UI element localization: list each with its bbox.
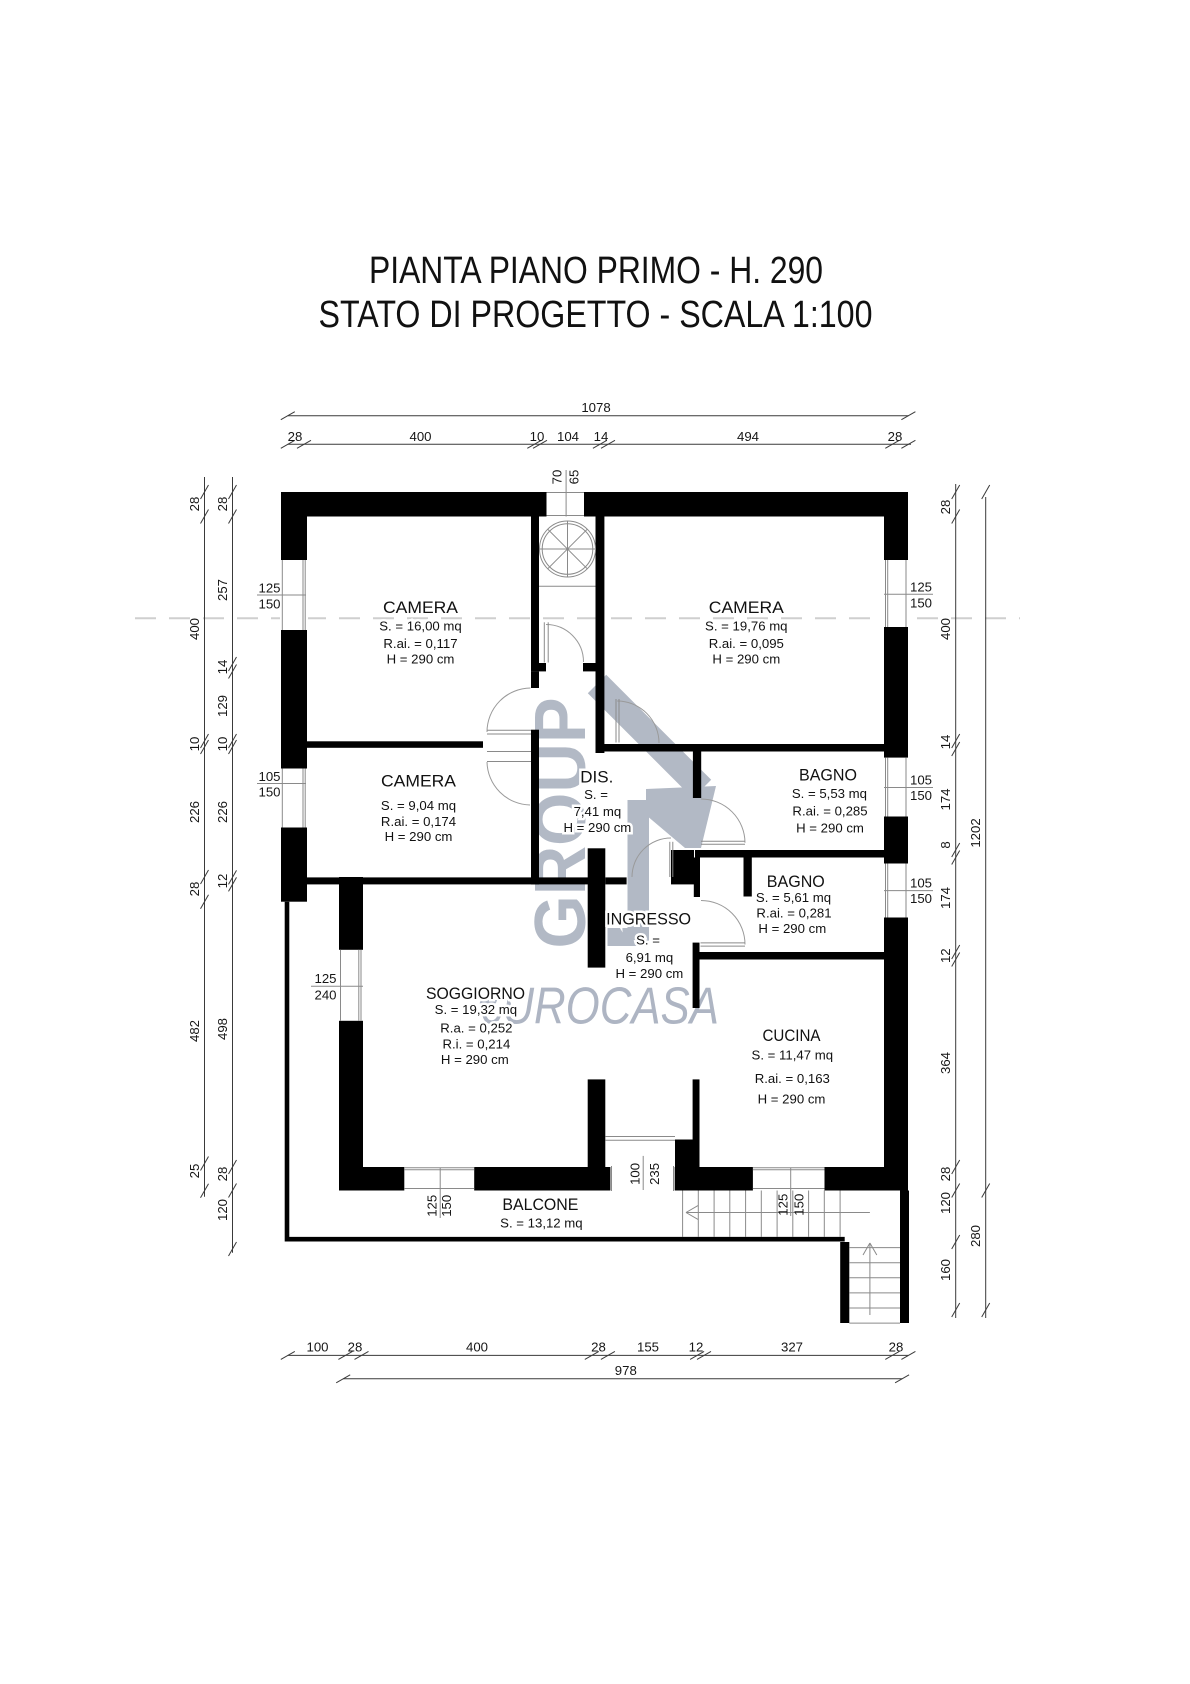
svg-text:H = 290 cm: H = 290 cm (615, 966, 683, 981)
svg-text:H = 290 cm: H = 290 cm (758, 1092, 826, 1107)
svg-text:14: 14 (938, 735, 953, 750)
svg-text:BAGNO: BAGNO (767, 872, 825, 891)
svg-text:125: 125 (425, 1195, 440, 1217)
svg-text:12: 12 (689, 1340, 704, 1355)
svg-text:S. =: S. = (584, 787, 608, 802)
svg-text:120: 120 (938, 1192, 953, 1214)
svg-text:CUCINA: CUCINA (763, 1026, 822, 1045)
svg-text:S. = 16,00 mq: S. = 16,00 mq (379, 619, 461, 634)
svg-text:10: 10 (215, 737, 230, 752)
svg-text:28: 28 (215, 1167, 230, 1182)
svg-text:R.ai. = 0,163: R.ai. = 0,163 (755, 1071, 830, 1086)
svg-text:978: 978 (615, 1363, 637, 1378)
svg-text:150: 150 (910, 891, 932, 906)
svg-text:28: 28 (888, 429, 903, 444)
svg-text:28: 28 (938, 1167, 953, 1182)
svg-text:400: 400 (938, 618, 953, 640)
svg-text:BALCONE: BALCONE (502, 1195, 578, 1214)
svg-text:240: 240 (314, 988, 336, 1003)
svg-text:CAMERA: CAMERA (383, 598, 459, 617)
svg-text:R.ai. = 0,285: R.ai. = 0,285 (792, 803, 867, 818)
svg-text:65: 65 (567, 470, 582, 485)
svg-text:1202: 1202 (968, 818, 983, 847)
svg-text:226: 226 (187, 801, 202, 823)
svg-text:H = 290 cm: H = 290 cm (563, 820, 631, 835)
svg-text:150: 150 (258, 785, 280, 800)
svg-text:28: 28 (288, 429, 303, 444)
svg-text:174: 174 (938, 788, 953, 810)
svg-text:498: 498 (215, 1018, 230, 1040)
svg-text:150: 150 (258, 597, 280, 612)
svg-text:125: 125 (776, 1194, 791, 1216)
svg-text:327: 327 (781, 1340, 803, 1355)
svg-text:28: 28 (889, 1340, 904, 1355)
svg-text:BAGNO: BAGNO (799, 766, 857, 785)
svg-text:6,91 mq: 6,91 mq (626, 950, 674, 965)
svg-text:10: 10 (530, 429, 545, 444)
svg-text:125: 125 (258, 581, 280, 596)
svg-text:174: 174 (938, 887, 953, 909)
svg-text:CAMERA: CAMERA (381, 772, 457, 791)
svg-text:10: 10 (187, 737, 202, 752)
svg-text:28: 28 (187, 882, 202, 897)
svg-text:12: 12 (938, 948, 953, 963)
svg-text:H = 290 cm: H = 290 cm (387, 652, 455, 667)
svg-text:H = 290 cm: H = 290 cm (758, 921, 826, 936)
svg-text:482: 482 (187, 1020, 202, 1042)
svg-text:150: 150 (910, 788, 932, 803)
svg-text:R.ai. = 0,117: R.ai. = 0,117 (383, 636, 457, 651)
svg-text:125: 125 (910, 580, 932, 595)
svg-text:105: 105 (258, 769, 280, 784)
svg-text:S. = 5,61 mq: S. = 5,61 mq (756, 890, 831, 905)
svg-text:STATO DI PROGETTO - SCALA 1:10: STATO DI PROGETTO - SCALA 1:100 (319, 294, 873, 336)
svg-text:257: 257 (215, 579, 230, 601)
svg-text:7,41 mq: 7,41 mq (574, 804, 622, 819)
svg-text:494: 494 (737, 429, 759, 444)
svg-text:R.ai. = 0,095: R.ai. = 0,095 (709, 636, 784, 651)
svg-text:H = 290 cm: H = 290 cm (441, 1052, 509, 1067)
svg-text:8: 8 (938, 841, 953, 848)
svg-text:12: 12 (215, 874, 230, 889)
svg-text:R.i. = 0,214: R.i. = 0,214 (442, 1037, 510, 1052)
svg-text:70: 70 (550, 470, 565, 485)
svg-text:235: 235 (647, 1163, 662, 1185)
svg-text:120: 120 (215, 1199, 230, 1221)
svg-text:14: 14 (594, 429, 609, 444)
svg-text:226: 226 (215, 801, 230, 823)
svg-text:28: 28 (348, 1340, 363, 1355)
svg-text:S. =: S. = (636, 933, 660, 948)
svg-text:28: 28 (938, 500, 953, 515)
svg-text:100: 100 (306, 1340, 328, 1355)
svg-text:INGRESSO: INGRESSO (606, 910, 691, 929)
svg-text:S. = 13,12 mq: S. = 13,12 mq (500, 1215, 582, 1230)
svg-text:150: 150 (910, 596, 932, 611)
svg-text:28: 28 (187, 497, 202, 512)
svg-text:H = 290 cm: H = 290 cm (385, 829, 453, 844)
svg-text:150: 150 (791, 1194, 806, 1216)
svg-text:280: 280 (968, 1225, 983, 1247)
svg-text:28: 28 (591, 1340, 606, 1355)
svg-text:125: 125 (314, 971, 336, 986)
svg-text:S. = 19,76 mq: S. = 19,76 mq (705, 619, 787, 634)
svg-text:S. = 5,53 mq: S. = 5,53 mq (792, 786, 867, 801)
svg-text:CAMERA: CAMERA (709, 598, 785, 617)
svg-text:R.ai. = 0,174: R.ai. = 0,174 (381, 814, 456, 829)
svg-text:SOGGIORNO: SOGGIORNO (426, 984, 525, 1003)
svg-text:104: 104 (557, 429, 579, 444)
svg-text:14: 14 (215, 660, 230, 675)
svg-text:DIS.: DIS. (580, 768, 613, 787)
svg-text:364: 364 (938, 1052, 953, 1074)
svg-text:R.ai. = 0,281: R.ai. = 0,281 (756, 905, 831, 920)
svg-text:105: 105 (910, 876, 932, 891)
svg-text:1078: 1078 (581, 400, 610, 415)
svg-text:160: 160 (938, 1259, 953, 1281)
svg-text:25: 25 (187, 1164, 202, 1179)
svg-text:150: 150 (439, 1195, 454, 1217)
svg-text:H = 290 cm: H = 290 cm (796, 820, 864, 835)
svg-text:H = 290 cm: H = 290 cm (712, 652, 780, 667)
svg-text:S. = 9,04 mq: S. = 9,04 mq (381, 798, 456, 813)
svg-text:400: 400 (466, 1340, 488, 1355)
svg-text:129: 129 (215, 695, 230, 717)
svg-text:28: 28 (215, 497, 230, 512)
svg-text:S. = 19,32 mq: S. = 19,32 mq (435, 1002, 517, 1017)
svg-text:105: 105 (910, 773, 932, 788)
svg-text:100: 100 (628, 1163, 643, 1185)
svg-text:400: 400 (409, 429, 431, 444)
svg-text:400: 400 (187, 618, 202, 640)
svg-text:PIANTA PIANO PRIMO - H. 290: PIANTA PIANO PRIMO - H. 290 (369, 250, 823, 292)
svg-text:155: 155 (637, 1340, 659, 1355)
svg-text:S. = 11,47 mq: S. = 11,47 mq (752, 1048, 834, 1063)
svg-text:R.a. = 0,252: R.a. = 0,252 (440, 1020, 512, 1035)
